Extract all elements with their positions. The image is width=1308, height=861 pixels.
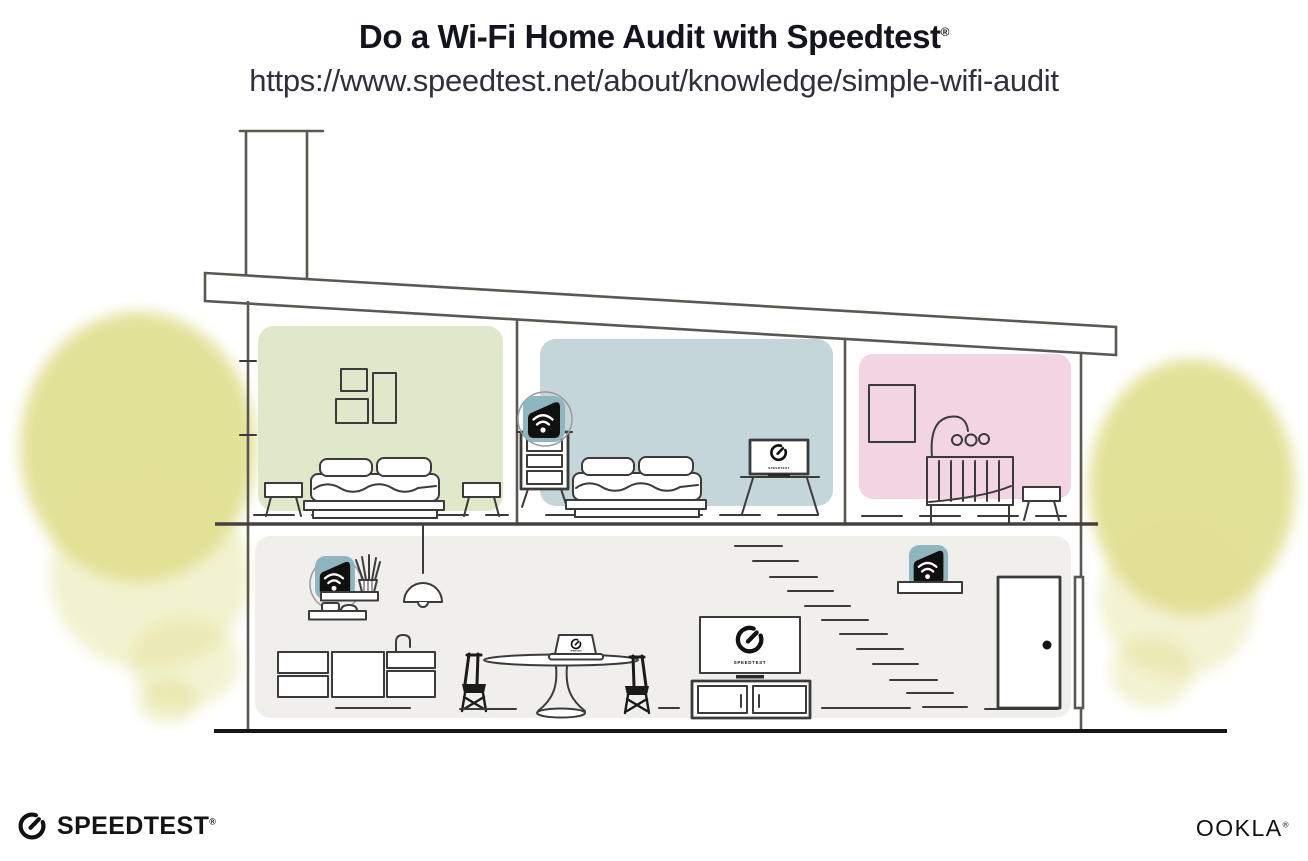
bedroom-tv-speedtest-label: SPEEDTEST — [768, 466, 789, 470]
house-illustration: SPEEDTEST — [0, 0, 1308, 861]
tv-foot — [736, 675, 764, 679]
laptop-speedtest-label: SPEEDTEST — [570, 651, 582, 653]
ookla-logo: OOKLA® — [1196, 815, 1290, 842]
wall-shelf-lower — [309, 611, 366, 620]
registered-mark: ® — [209, 816, 216, 826]
ookla-wordmark: OOKLA — [1196, 815, 1283, 841]
registered-mark: ® — [1283, 820, 1290, 829]
wall-shelf-upper — [321, 592, 378, 601]
stair-shelf — [898, 582, 962, 593]
door — [998, 577, 1060, 708]
tv-living-room: SPEEDTEST — [700, 617, 800, 679]
media-console — [692, 681, 810, 718]
chimney — [240, 131, 323, 279]
living-tv-speedtest-label: SPEEDTEST — [734, 660, 766, 665]
door-knob — [1043, 641, 1052, 650]
tree-right — [1089, 359, 1295, 708]
speedtest-logo: SPEEDTEST® — [16, 810, 216, 842]
wifi-extender-bedroom — [518, 392, 572, 446]
room-nursery — [859, 354, 1071, 499]
tv-foot — [768, 474, 790, 478]
tree-left — [20, 312, 256, 722]
speedtest-gauge-logo-icon — [16, 810, 48, 842]
speedtest-wordmark: SPEEDTEST® — [57, 812, 216, 841]
cup — [322, 603, 339, 611]
wall-trim — [1075, 577, 1083, 708]
